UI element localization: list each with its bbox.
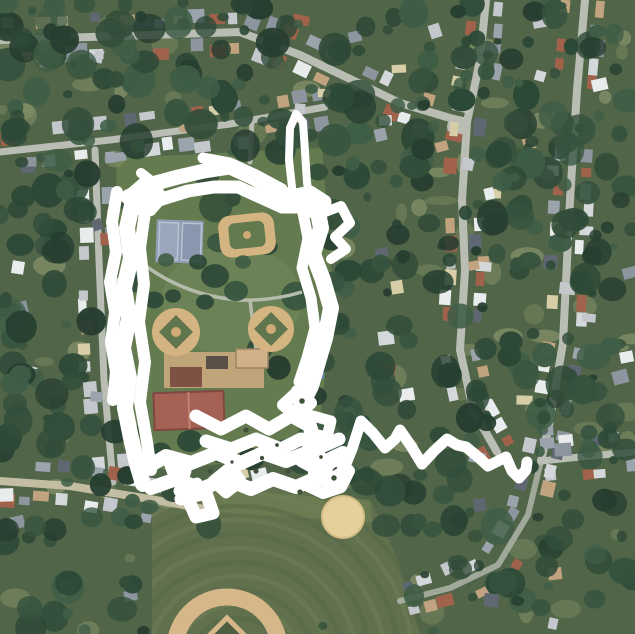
scribble-gap-speck: [230, 460, 233, 463]
scribble-gap-speck: [331, 475, 336, 480]
scribble-gap-speck: [243, 427, 248, 432]
scribble-gap-speck: [208, 469, 213, 474]
map-viewport[interactable]: [0, 0, 635, 634]
scribble-gap-speck: [275, 443, 279, 447]
scribble-gap-speck: [339, 422, 342, 425]
satellite-map-image: [0, 0, 635, 634]
scribble-gap-speck: [285, 468, 290, 473]
scribble-stroke-left-band-3: [110, 192, 117, 400]
scribble-gap-speck: [299, 398, 305, 404]
scribble-gap-speck: [297, 489, 302, 494]
scribble-gap-speck: [253, 468, 258, 473]
scribble-gap-speck: [260, 456, 264, 460]
scribble-gap-speck: [319, 455, 323, 459]
